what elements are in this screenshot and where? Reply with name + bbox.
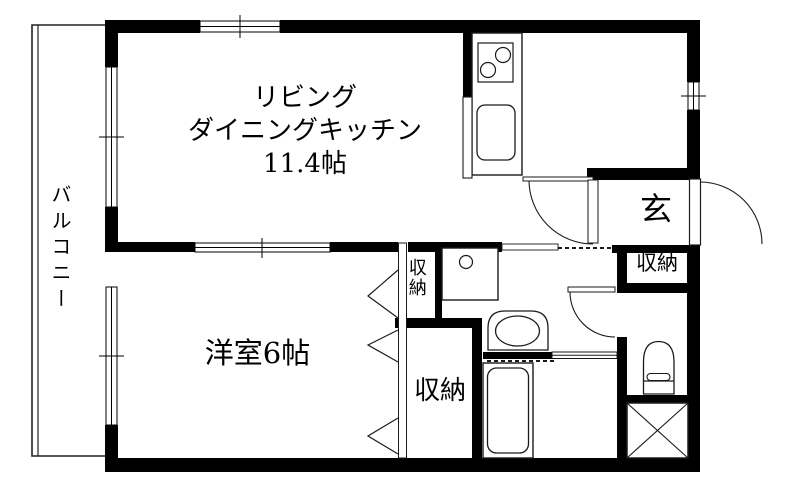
ldk-room-label-line2: ダイニングキッチン — [155, 117, 455, 146]
wall-hall-closet-bottom — [395, 318, 482, 328]
window-right-icon — [681, 82, 706, 110]
wall-right-middle — [687, 110, 700, 178]
kitchen-counter-icon — [463, 33, 522, 178]
entrance-label: 玄 — [640, 192, 672, 227]
bathroom-door-icon — [552, 352, 617, 359]
wall-entrance-closet-bottom — [617, 283, 690, 293]
window-left-upper-icon — [99, 67, 124, 207]
wall-hall-closet-right — [435, 248, 442, 327]
burner-icon — [481, 63, 496, 78]
wall-bottom — [105, 458, 700, 472]
shaft-x-box-icon — [627, 403, 688, 458]
wall-right-lower — [687, 245, 700, 472]
wall-right-upper — [687, 33, 700, 82]
wall-entrance-top — [587, 168, 700, 180]
washing-machine-icon — [442, 248, 498, 300]
wall-ldk-bedroom-right — [330, 242, 398, 252]
toilet-door-icon — [568, 287, 615, 337]
wall-bath-top — [483, 352, 552, 359]
front-door-icon — [690, 179, 763, 245]
wall-left-upper — [105, 33, 118, 67]
hall-closet-label: 収納 — [406, 258, 426, 298]
bedroom-closet-folding-door-icon — [368, 243, 407, 458]
kitchen-sink-icon — [477, 105, 515, 160]
floorplan: リビング ダイニングキッチン 11.4帖 洋室6帖 バルコニー 玄 収納 収納 … — [0, 0, 800, 489]
balcony-label: バルコニー — [49, 184, 71, 314]
washbasin-icon — [488, 311, 548, 350]
entrance-closet-label: 収納 — [625, 252, 689, 275]
wall-kitchen-stub — [463, 33, 472, 97]
ldk-room-label-line3: 11.4帖 — [155, 150, 455, 179]
window-top-icon — [200, 15, 280, 38]
entrance-hall-door-icon — [523, 177, 598, 244]
doors — [368, 177, 762, 458]
window-ldk-bedroom-icon — [195, 238, 330, 258]
burner-icon — [496, 48, 511, 63]
hall-opening-strip — [502, 244, 558, 250]
ldk-room-label-line1: リビング — [155, 84, 455, 113]
wall-toilet-bottom — [625, 395, 690, 403]
bedroom-label: 洋室6帖 — [150, 338, 365, 370]
floorplan-drawing — [0, 0, 800, 489]
bathtub-icon — [483, 363, 533, 458]
wall-ldk-bedroom-left — [105, 242, 195, 252]
wall-top-left — [105, 20, 200, 33]
wall-top-right — [280, 20, 700, 33]
bedroom-closet-label: 収納 — [402, 377, 478, 406]
window-left-lower-icon — [99, 287, 124, 425]
toilet-icon — [644, 342, 675, 395]
